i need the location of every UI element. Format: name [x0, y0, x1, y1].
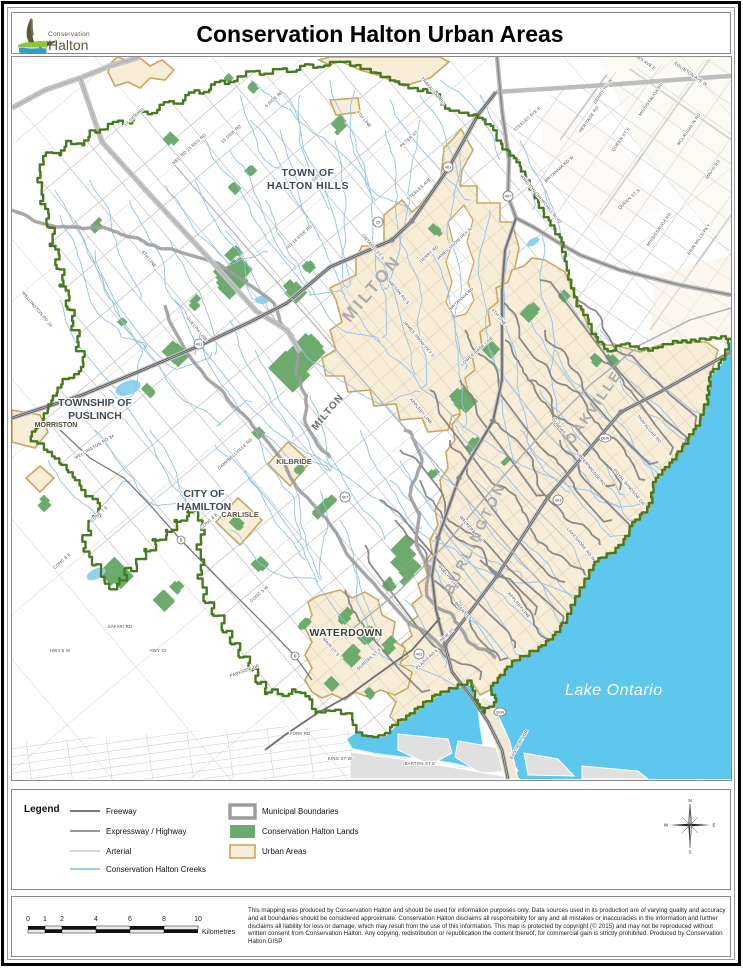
svg-text:TOWN OF: TOWN OF: [282, 167, 335, 179]
svg-text:S: S: [688, 850, 691, 855]
svg-text:W: W: [664, 823, 669, 828]
svg-text:Freeway: Freeway: [106, 807, 137, 816]
svg-text:1: 1: [43, 916, 47, 923]
svg-text:401: 401: [445, 165, 452, 170]
svg-text:Conservation Halton Lands: Conservation Halton Lands: [262, 827, 359, 836]
svg-text:Urban Areas: Urban Areas: [262, 847, 306, 856]
svg-text:6: 6: [128, 916, 132, 923]
svg-text:CARLISLE: CARLISLE: [221, 510, 259, 519]
svg-text:Lake Ontario: Lake Ontario: [565, 682, 663, 699]
svg-text:BARTON ST E: BARTON ST E: [405, 761, 436, 766]
svg-text:KILBRIDE: KILBRIDE: [276, 457, 311, 466]
svg-text:SAFARI RD: SAFARI RD: [108, 624, 132, 629]
svg-text:10: 10: [194, 916, 202, 923]
svg-text:TOWNSHIP OF: TOWNSHIP OF: [58, 397, 132, 409]
svg-text:WATERDOWN: WATERDOWN: [309, 627, 382, 639]
svg-text:407: 407: [342, 495, 349, 500]
svg-text:2: 2: [60, 916, 64, 923]
svg-text:Expressway / Highway: Expressway / Highway: [106, 827, 186, 836]
svg-text:HWY 52: HWY 52: [149, 648, 167, 653]
svg-text:MORRISTON: MORRISTON: [35, 422, 78, 429]
svg-text:N: N: [688, 798, 691, 803]
svg-text:Kilometres: Kilometres: [202, 929, 235, 936]
svg-text:CITY OF: CITY OF: [183, 488, 225, 500]
svg-text:E: E: [712, 823, 715, 828]
svg-text:PUSLINCH: PUSLINCH: [68, 410, 122, 422]
svg-text:4: 4: [94, 916, 98, 923]
svg-text:403: 403: [416, 652, 423, 657]
svg-text:QEW: QEW: [601, 436, 610, 440]
svg-text:403: 403: [555, 498, 562, 503]
svg-text:Conservation Halton Creeks: Conservation Halton Creeks: [106, 865, 206, 874]
svg-text:Municipal Boundaries: Municipal Boundaries: [262, 807, 339, 816]
svg-text:0: 0: [26, 916, 30, 923]
svg-text:KING ST W: KING ST W: [328, 756, 353, 761]
svg-text:401: 401: [196, 342, 203, 347]
svg-text:25: 25: [376, 220, 381, 225]
svg-text:Arterial: Arterial: [106, 847, 132, 856]
svg-text:HALTON HILLS: HALTON HILLS: [267, 180, 349, 192]
svg-text:YORK RD: YORK RD: [290, 731, 311, 736]
svg-text:HWY 5 W: HWY 5 W: [50, 648, 71, 653]
svg-text:QEW: QEW: [496, 710, 505, 714]
svg-text:8: 8: [162, 916, 166, 923]
svg-text:407: 407: [505, 194, 512, 199]
